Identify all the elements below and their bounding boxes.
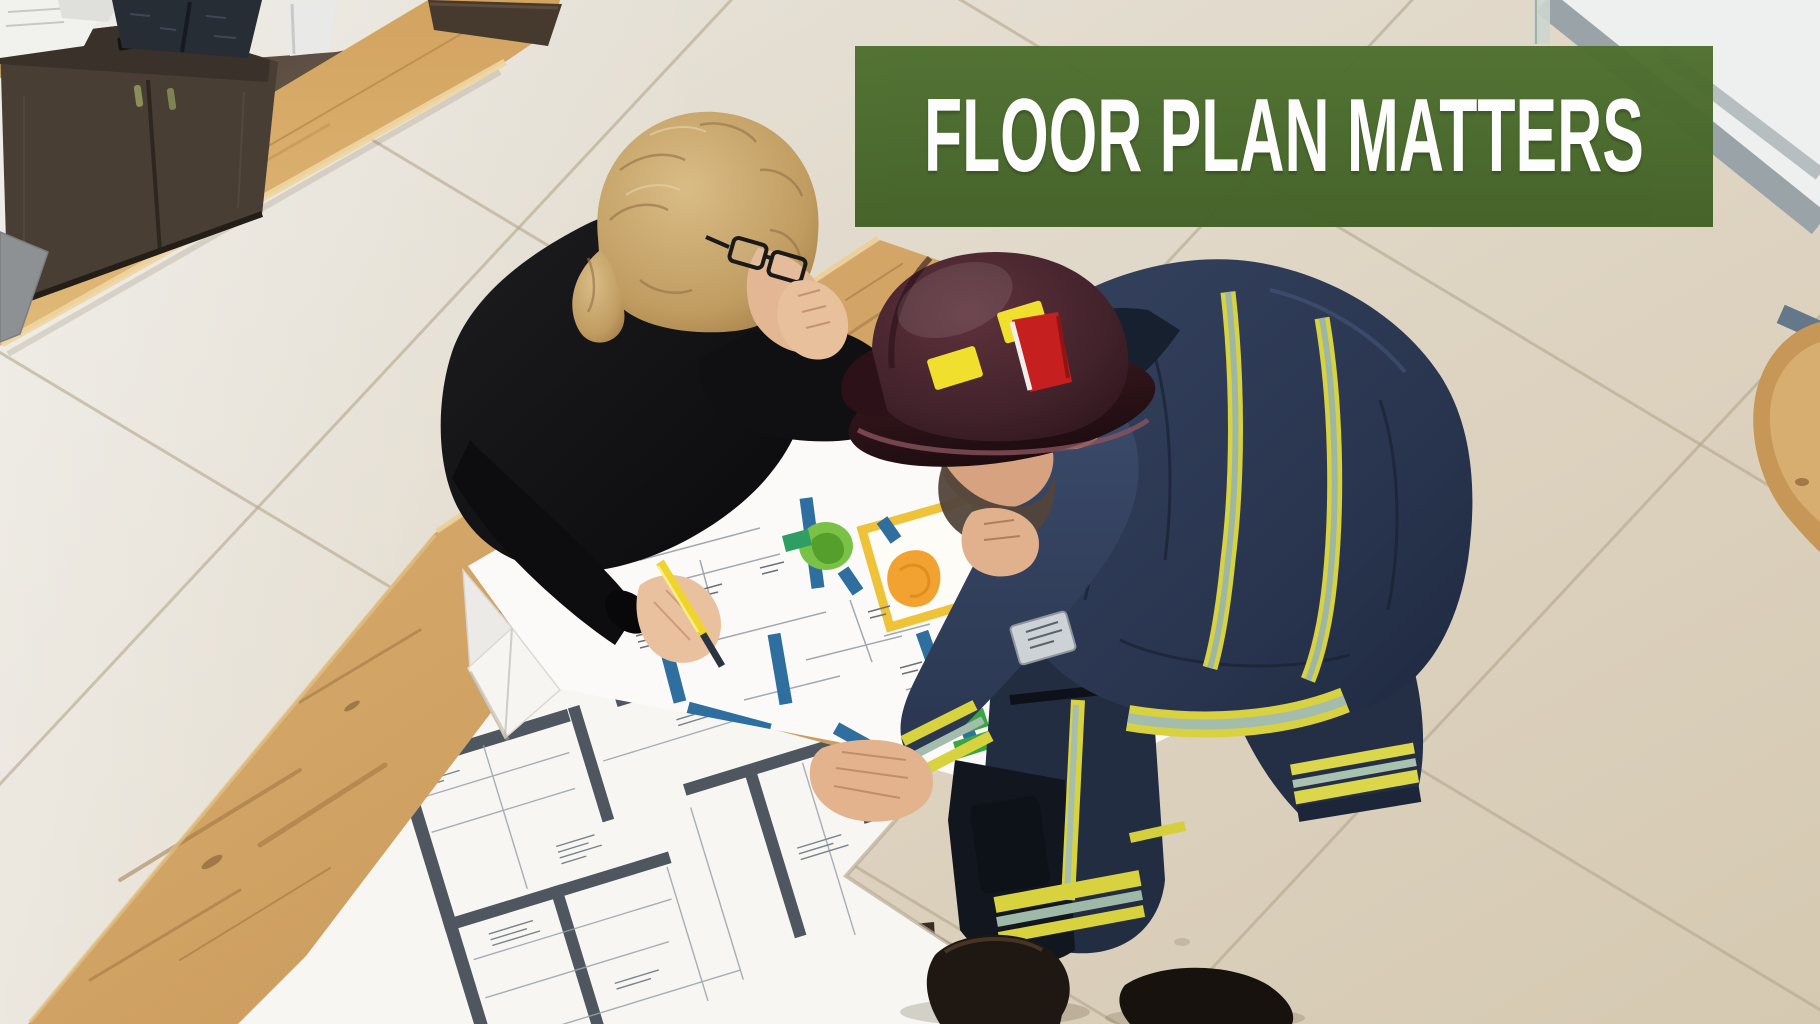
chair-wood-knot — [1795, 478, 1809, 486]
plan-orange-fixture — [887, 550, 940, 607]
photo-hero: FLOOR PLAN MATTERS — [0, 0, 1820, 1024]
banner: FLOOR PLAN MATTERS — [855, 46, 1713, 227]
white-column — [286, 0, 336, 56]
floor-mark — [1174, 938, 1190, 946]
leg-pocket — [969, 796, 1051, 895]
banner-title: FLOOR PLAN MATTERS — [924, 77, 1644, 196]
